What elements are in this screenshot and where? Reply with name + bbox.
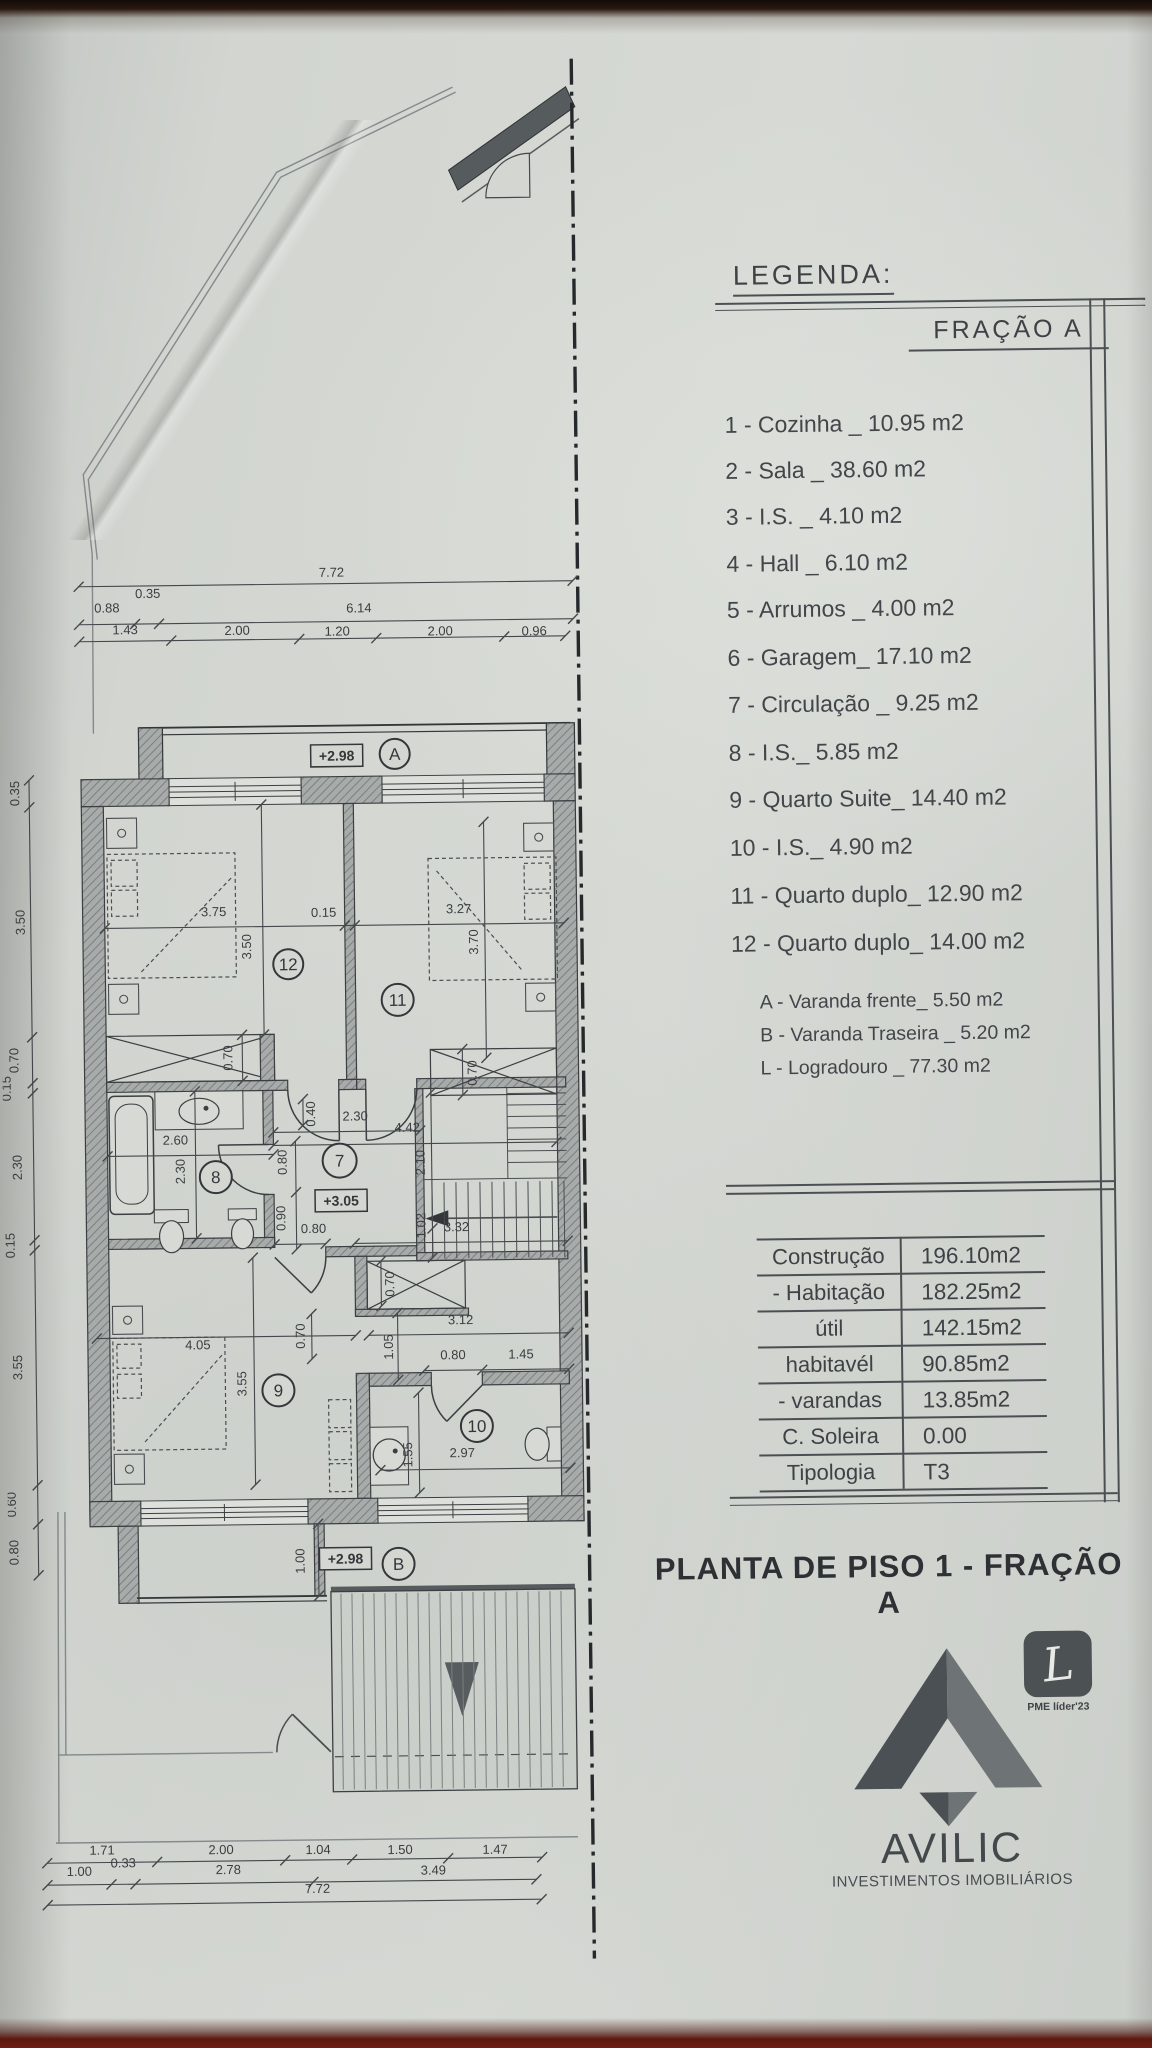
level-marker-label: +2.98 <box>328 1550 364 1566</box>
dimension-label: 0.70 <box>382 1271 397 1296</box>
dimension-label: 3.55 <box>234 1371 249 1396</box>
dimension-line <box>398 1313 399 1380</box>
table-row-label: Tipologia <box>759 1459 902 1487</box>
legend-item: 8 - I.S._ 5.85 m2 <box>729 738 899 767</box>
table-row-label: Construção <box>757 1243 900 1271</box>
dimension-label: 1.02 <box>413 1213 428 1238</box>
dimension-line <box>48 1899 542 1905</box>
legend-item: 4 - Hall _ 6.10 m2 <box>726 549 908 578</box>
dimension-label: 3.32 <box>444 1219 469 1234</box>
divider <box>715 305 1145 312</box>
dimension-label: 2.78 <box>216 1862 241 1877</box>
table-row-value: 0.00 <box>923 1423 967 1450</box>
dimension-label: 0.15 <box>0 1076 14 1101</box>
dimension-line <box>275 1244 326 1245</box>
table-row-label: - varandas <box>758 1387 901 1415</box>
dimension-label: 0.15 <box>3 1233 18 1258</box>
level-marker-label: +2.98 <box>319 747 355 763</box>
dimension-label: 4.05 <box>185 1337 210 1352</box>
dimension-label: 3.55 <box>10 1355 25 1380</box>
dimension-label: 0.96 <box>521 623 546 638</box>
dimension-label: 1.47 <box>482 1842 507 1857</box>
dimension-label: 1.50 <box>387 1842 412 1857</box>
pme-lider-label: PME líder'23 <box>1010 1700 1106 1713</box>
room-number-label: B <box>393 1555 405 1574</box>
dimension-label: 3.75 <box>201 904 226 919</box>
level-marker-label: +3.05 <box>323 1192 359 1208</box>
dimension-label: 0.33 <box>110 1855 135 1870</box>
dimension-label: 2.30 <box>173 1159 188 1184</box>
legend-item: 7 - Circulação _ 9.25 m2 <box>728 689 979 719</box>
divider <box>726 1188 1114 1194</box>
dimension-line <box>105 923 564 929</box>
plan-title: PLANTA DE PISO 1 - FRAÇÃO A <box>648 1546 1129 1624</box>
legend-item: 1 - Cozinha _ 10.95 m2 <box>725 409 964 439</box>
dimension-label: 0.80 <box>275 1150 290 1175</box>
dimension-label: 3.12 <box>448 1312 473 1327</box>
dimension-label: 1.55 <box>400 1442 415 1467</box>
dimension-label: 7.72 <box>305 1881 330 1896</box>
legend-item: 5 - Arrumos _ 4.00 m2 <box>727 594 955 624</box>
dimension-line <box>431 1092 433 1257</box>
rear-balcony <box>137 1596 327 1603</box>
dimension-label: 0.70 <box>6 1048 21 1073</box>
dimension-line <box>312 1314 313 1359</box>
pme-lider-letter-icon: L <box>1040 1639 1076 1688</box>
dimension-label: 7.72 <box>319 565 344 580</box>
stair-tread <box>492 1182 493 1258</box>
room-number-label: 8 <box>211 1168 221 1187</box>
dimension-label: 0.80 <box>301 1221 326 1236</box>
dimension-label: 6.14 <box>346 600 371 615</box>
photographed-floor-plan-sheet: 7.720.880.356.141.432.001.202.000.960.35… <box>0 0 1152 2048</box>
legend-annex-item: L - Logradouro _ 77.30 m2 <box>760 1055 990 1081</box>
table-row-value: T3 <box>923 1459 950 1485</box>
dimension-label: 0.70 <box>220 1045 235 1070</box>
table-row-value: 182.25m2 <box>921 1278 1021 1305</box>
entrance-canopy <box>448 87 580 203</box>
table-row-label: útil <box>758 1315 901 1343</box>
dimension-line <box>418 1393 419 1493</box>
legend-item: 6 - Garagem_ 17.10 m2 <box>727 642 971 672</box>
divider <box>730 1492 1118 1499</box>
dimension-label: 4.42 <box>394 1120 419 1135</box>
room-number-label: 7 <box>335 1152 345 1171</box>
legend-annex-item: A - Varanda frente_ 5.50 m2 <box>760 988 1004 1014</box>
dimension-label: 3.27 <box>446 901 471 916</box>
dimension-label: 0.70 <box>293 1323 308 1348</box>
table-row-value: 13.85m2 <box>922 1386 1010 1413</box>
dimension-label: 0.88 <box>94 600 119 615</box>
dimension-label: 2.10 <box>413 1150 428 1175</box>
legend-annex-item: B - Varanda Traseira _ 5.20 m2 <box>760 1021 1031 1047</box>
legend-item: 3 - I.S. _ 4.10 m2 <box>726 502 903 531</box>
dimension-label: 2.00 <box>224 623 249 638</box>
dimension-label: 0.35 <box>7 781 22 806</box>
dimension-label: 2.97 <box>449 1445 474 1460</box>
brand-tagline: INVESTIMENTOS IMOBILIÁRIOS <box>812 1870 1092 1890</box>
dimension-label: 2.30 <box>342 1108 367 1123</box>
dimension-label: 3.50 <box>239 934 254 959</box>
table-row-value: 196.10m2 <box>921 1242 1021 1269</box>
table-row-value: 142.15m2 <box>922 1314 1022 1341</box>
dimension-line <box>295 1141 296 1249</box>
dimension-label: 2.60 <box>163 1132 188 1147</box>
legend-item: 9 - Quarto Suite_ 14.40 m2 <box>729 783 1007 813</box>
pme-lider-badge: L <box>1023 1630 1092 1697</box>
lot-boundary <box>35 86 578 1843</box>
divider <box>730 1500 1118 1506</box>
stair-tread <box>540 1181 541 1257</box>
table-row-label: habitavél <box>758 1351 901 1379</box>
dimension-line <box>355 1241 568 1244</box>
stair-tread <box>528 1181 529 1257</box>
dimension-label: 1.04 <box>305 1842 330 1857</box>
dimension-label: 2.00 <box>427 623 452 638</box>
dimension-label: 0.80 <box>6 1540 21 1565</box>
room-number-label: 10 <box>467 1417 486 1436</box>
dimension-label: 3.50 <box>13 910 28 935</box>
dimension-line <box>97 1335 356 1338</box>
dimension-line <box>424 1369 569 1371</box>
dimension-label: 1.05 <box>381 1334 396 1359</box>
dimension-line <box>462 1049 463 1095</box>
dimension-label: 2.00 <box>208 1842 233 1857</box>
room-number-label: 9 <box>274 1381 284 1400</box>
room-number-label: 11 <box>389 991 407 1010</box>
stair-tread <box>480 1182 481 1258</box>
dimension-line <box>47 1879 536 1885</box>
room-number-label: 12 <box>279 955 298 974</box>
dimension-label: 0.90 <box>273 1206 288 1231</box>
dimension-label: 1.00 <box>292 1548 307 1573</box>
table-column-divider <box>900 1237 905 1489</box>
table-row-value: 90.85m2 <box>922 1350 1010 1377</box>
stair-tread <box>504 1182 505 1258</box>
dimension-label: 1.20 <box>324 623 349 638</box>
dimension-line <box>79 636 565 642</box>
dimension-label: 0.35 <box>135 586 160 601</box>
table-row-label: C. Soleira <box>759 1423 902 1451</box>
dimension-line <box>369 1333 569 1335</box>
stair-tread <box>552 1181 553 1257</box>
dimension-label: 3.70 <box>466 929 481 954</box>
legend-item: 12 - Quarto duplo_ 14.00 m2 <box>731 927 1025 958</box>
divider <box>726 1180 1114 1187</box>
dimension-line <box>261 805 264 1035</box>
dimension-line <box>253 1258 256 1485</box>
dimension-label: 0.70 <box>464 1060 479 1085</box>
dimension-label: 1.43 <box>112 622 137 637</box>
dimension-line <box>242 1035 243 1081</box>
dimension-label: 3.49 <box>421 1862 446 1877</box>
legend-item: 11 - Quarto duplo_ 12.90 m2 <box>730 879 1023 910</box>
dimension-label: 0.15 <box>311 905 336 920</box>
walls <box>81 774 585 1604</box>
dimension-label: 1.45 <box>508 1346 533 1361</box>
dimension-line <box>29 780 39 1575</box>
legend-title: LEGENDA: <box>733 259 894 297</box>
divider <box>715 298 1145 305</box>
dimension-label: 2.30 <box>10 1155 25 1180</box>
dimension-label: 0.80 <box>440 1347 465 1362</box>
dimension-label: 1.00 <box>67 1864 92 1879</box>
table-row-label: - Habitação <box>757 1279 900 1307</box>
panel-frame-line <box>1103 298 1120 1502</box>
room-number-label: A <box>389 745 401 764</box>
floor-plan-drawing: 7.720.880.356.141.432.001.202.000.960.35… <box>0 0 635 2048</box>
dimension-label: 0.40 <box>303 1101 318 1126</box>
stair-tread <box>516 1181 517 1257</box>
fraction-heading: FRAÇÃO A <box>908 314 1108 351</box>
brand-name: AVILIC <box>832 1823 1073 1874</box>
legend-item: 10 - I.S._ 4.90 m2 <box>730 833 913 862</box>
panel-frame-line <box>1089 298 1106 1502</box>
legend-item: 2 - Sala _ 38.60 m2 <box>725 455 926 484</box>
